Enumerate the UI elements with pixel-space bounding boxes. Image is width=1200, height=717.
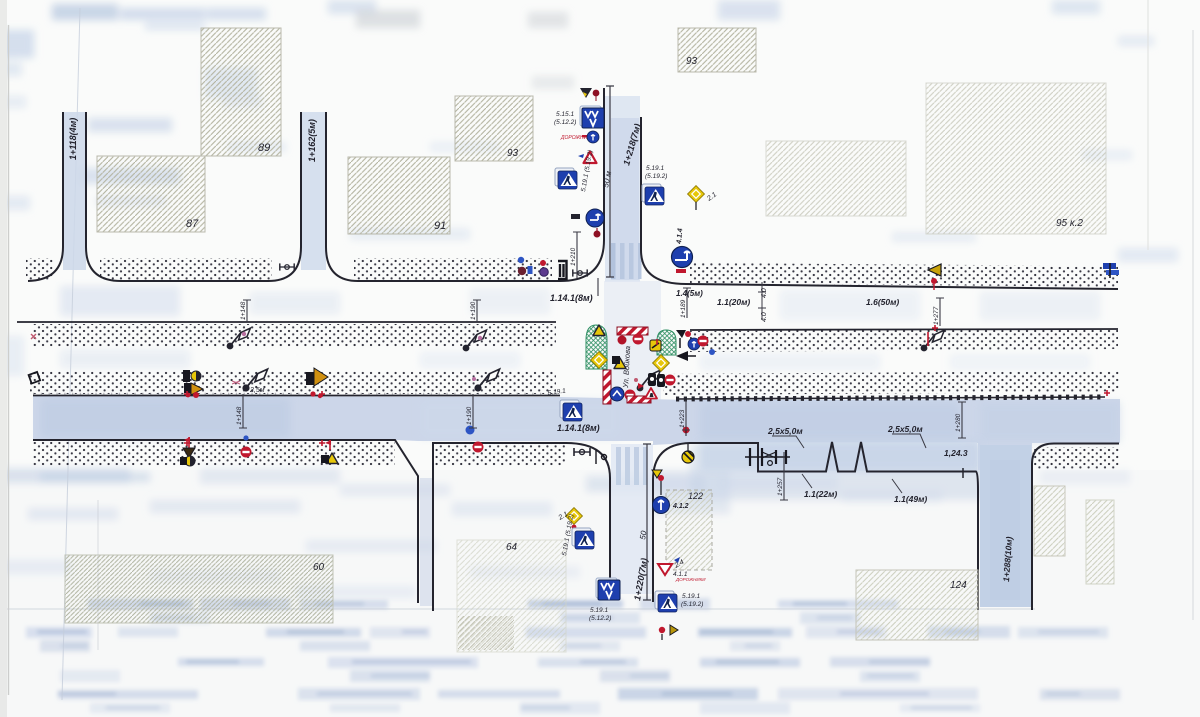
svg-text:1+190: 1+190 (470, 301, 477, 320)
svg-text:(5.12.2): (5.12.2) (589, 615, 611, 622)
svg-text:(5.19.2): (5.19.2) (681, 601, 703, 608)
svg-text:1+190: 1+190 (466, 406, 473, 425)
svg-text:5.15.1: 5.15.1 (556, 111, 574, 118)
svg-text:1,24.3: 1,24.3 (944, 448, 968, 458)
svg-text:5.19.1: 5.19.1 (682, 593, 700, 600)
svg-text:1+118(4м): 1+118(4м) (68, 118, 78, 160)
svg-text:1+189: 1+189 (680, 299, 687, 318)
svg-text:1+210: 1+210 (570, 247, 577, 266)
svg-text:4.1.2: 4.1.2 (672, 503, 689, 510)
svg-text:93: 93 (507, 148, 519, 159)
svg-text:93: 93 (686, 56, 698, 67)
svg-text:1.14.1(8м): 1.14.1(8м) (550, 293, 593, 303)
svg-text:1+280: 1+280 (955, 413, 962, 432)
svg-text:1+257: 1+257 (777, 477, 784, 496)
svg-text:(5.12.2): (5.12.2) (554, 119, 576, 126)
svg-text:1+148: 1+148 (236, 406, 243, 425)
svg-text:89: 89 (258, 142, 270, 154)
svg-text:60: 60 (313, 562, 325, 573)
svg-text:1+277: 1+277 (933, 306, 940, 325)
svg-text:1.6(50м): 1.6(50м) (866, 297, 899, 307)
svg-text:1.1(20м): 1.1(20м) (717, 297, 750, 307)
svg-text:1+162(5м): 1+162(5м) (307, 119, 317, 162)
svg-text:4.1.4: 4.1.4 (676, 228, 684, 245)
svg-text:1.4(5м): 1.4(5м) (676, 289, 703, 298)
svg-text:1.1(22м): 1.1(22м) (804, 489, 837, 499)
svg-text:64: 64 (506, 542, 518, 553)
svg-text:(5.19.2): (5.19.2) (645, 173, 667, 180)
svg-text:2,5х5,0м: 2,5х5,0м (767, 426, 803, 436)
svg-text:1+223: 1+223 (679, 409, 686, 428)
svg-text:95 к.2: 95 к.2 (1056, 218, 1083, 229)
svg-text:5.19.1: 5.19.1 (590, 607, 608, 614)
svg-text:1.14.1(8м): 1.14.1(8м) (557, 423, 600, 433)
svg-text:2,5х5,0м: 2,5х5,0м (887, 424, 923, 434)
svg-text:4.1.1: 4.1.1 (673, 571, 688, 578)
svg-text:1+148: 1+148 (240, 301, 247, 320)
svg-text:2,5м: 2,5м (249, 387, 265, 394)
svg-text:1.1(49м): 1.1(49м) (894, 494, 927, 504)
svg-text:122: 122 (688, 491, 703, 501)
svg-text:87: 87 (186, 218, 199, 230)
svg-text:91: 91 (434, 220, 446, 232)
svg-text:124: 124 (950, 580, 967, 591)
svg-text:5.19.1: 5.19.1 (646, 165, 664, 172)
